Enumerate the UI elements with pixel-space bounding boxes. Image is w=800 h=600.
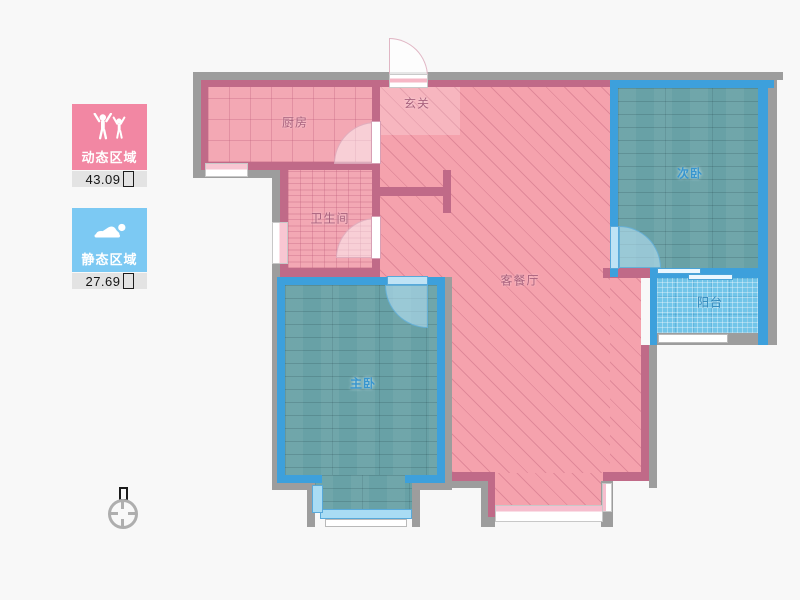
- balcony-label: 阳台: [697, 294, 723, 311]
- dynamic-area-label: 动态区域: [81, 147, 137, 166]
- wall-bed2-right: [758, 80, 768, 345]
- balcony-sliding-door-panel-2: [688, 274, 733, 280]
- entry-label: 玄关: [404, 95, 430, 112]
- wall-master-left: [277, 277, 285, 483]
- living-bay-window-right: [602, 483, 612, 512]
- static-area-unit: ㎡: [123, 273, 134, 289]
- floorplan-canvas: 厨房 玄关 卫生间 客餐厅 主卧 次卧 阳台 动态区域 43.09㎡: [0, 0, 800, 600]
- kitchen-label: 厨房: [282, 114, 308, 131]
- master-bay-window-bottom: [320, 509, 412, 519]
- outer-wall-right: [768, 72, 777, 345]
- wall-t-cap: [443, 170, 451, 213]
- compass-tick-south: [121, 519, 124, 527]
- static-area-value: 27.69㎡: [72, 273, 147, 289]
- second-bedroom-label: 次卧: [677, 165, 703, 182]
- wall-bath-bottom: [280, 268, 380, 277]
- compass-tick-north: [121, 501, 124, 509]
- compass-tick-east: [128, 512, 136, 515]
- wall-bed2-top-lining: [610, 80, 774, 88]
- entrance-door-arc: [389, 38, 428, 77]
- outer-wall-top: [193, 72, 783, 80]
- wall-living-bay-left-lining: [488, 481, 495, 517]
- wall-t-stub: [380, 187, 443, 196]
- bathroom-door-leaf: [371, 216, 381, 259]
- master-bay-floor: [315, 475, 412, 511]
- dynamic-area-value: 43.09㎡: [72, 171, 147, 187]
- master-bedroom-label: 主卧: [350, 375, 376, 392]
- wall-balcony-left: [650, 268, 657, 345]
- second-bedroom-door-leaf: [610, 226, 619, 269]
- wall-master-right: [437, 277, 445, 483]
- living-dining-label: 客餐厅: [500, 272, 539, 289]
- balcony-window: [658, 334, 728, 343]
- people-arms-up-icon: [90, 113, 130, 145]
- living-bay-floor: [495, 473, 603, 507]
- wall-master-bottom-b: [405, 475, 445, 483]
- outer-wall-living-right: [649, 345, 657, 488]
- dynamic-area-number: 43.09: [85, 172, 120, 187]
- static-area-label: 静态区域: [81, 249, 137, 268]
- wall-master-bottom-a: [277, 475, 322, 483]
- bathroom-label: 卫生间: [310, 210, 349, 227]
- outer-wall-left-upper: [193, 72, 201, 178]
- wall-living-bottom-right: [603, 472, 641, 481]
- compass-tick-west: [110, 512, 118, 515]
- kitchen-door-leaf: [371, 121, 381, 164]
- entrance-door: [389, 74, 428, 88]
- living-bay-window-bottom: [495, 505, 603, 522]
- static-area-card[interactable]: 静态区域: [72, 208, 147, 272]
- dynamic-area-card[interactable]: 动态区域: [72, 104, 147, 170]
- person-lying-icon: [90, 222, 130, 247]
- wall-master-living-divider: [445, 277, 452, 488]
- living-dining-floor-right: [610, 277, 641, 473]
- wall-living-right: [641, 345, 649, 481]
- static-area-number: 27.69: [85, 274, 120, 289]
- wall-kitchen-left-lining: [201, 87, 208, 162]
- wall-living-bottom-left: [452, 472, 495, 481]
- master-bedroom-door-leaf: [387, 276, 428, 285]
- bathroom-window: [272, 222, 288, 264]
- dynamic-area-unit: ㎡: [123, 171, 134, 187]
- kitchen-window: [205, 163, 248, 177]
- master-bay-window-left: [312, 485, 323, 513]
- master-bay-window-sill: [325, 519, 407, 527]
